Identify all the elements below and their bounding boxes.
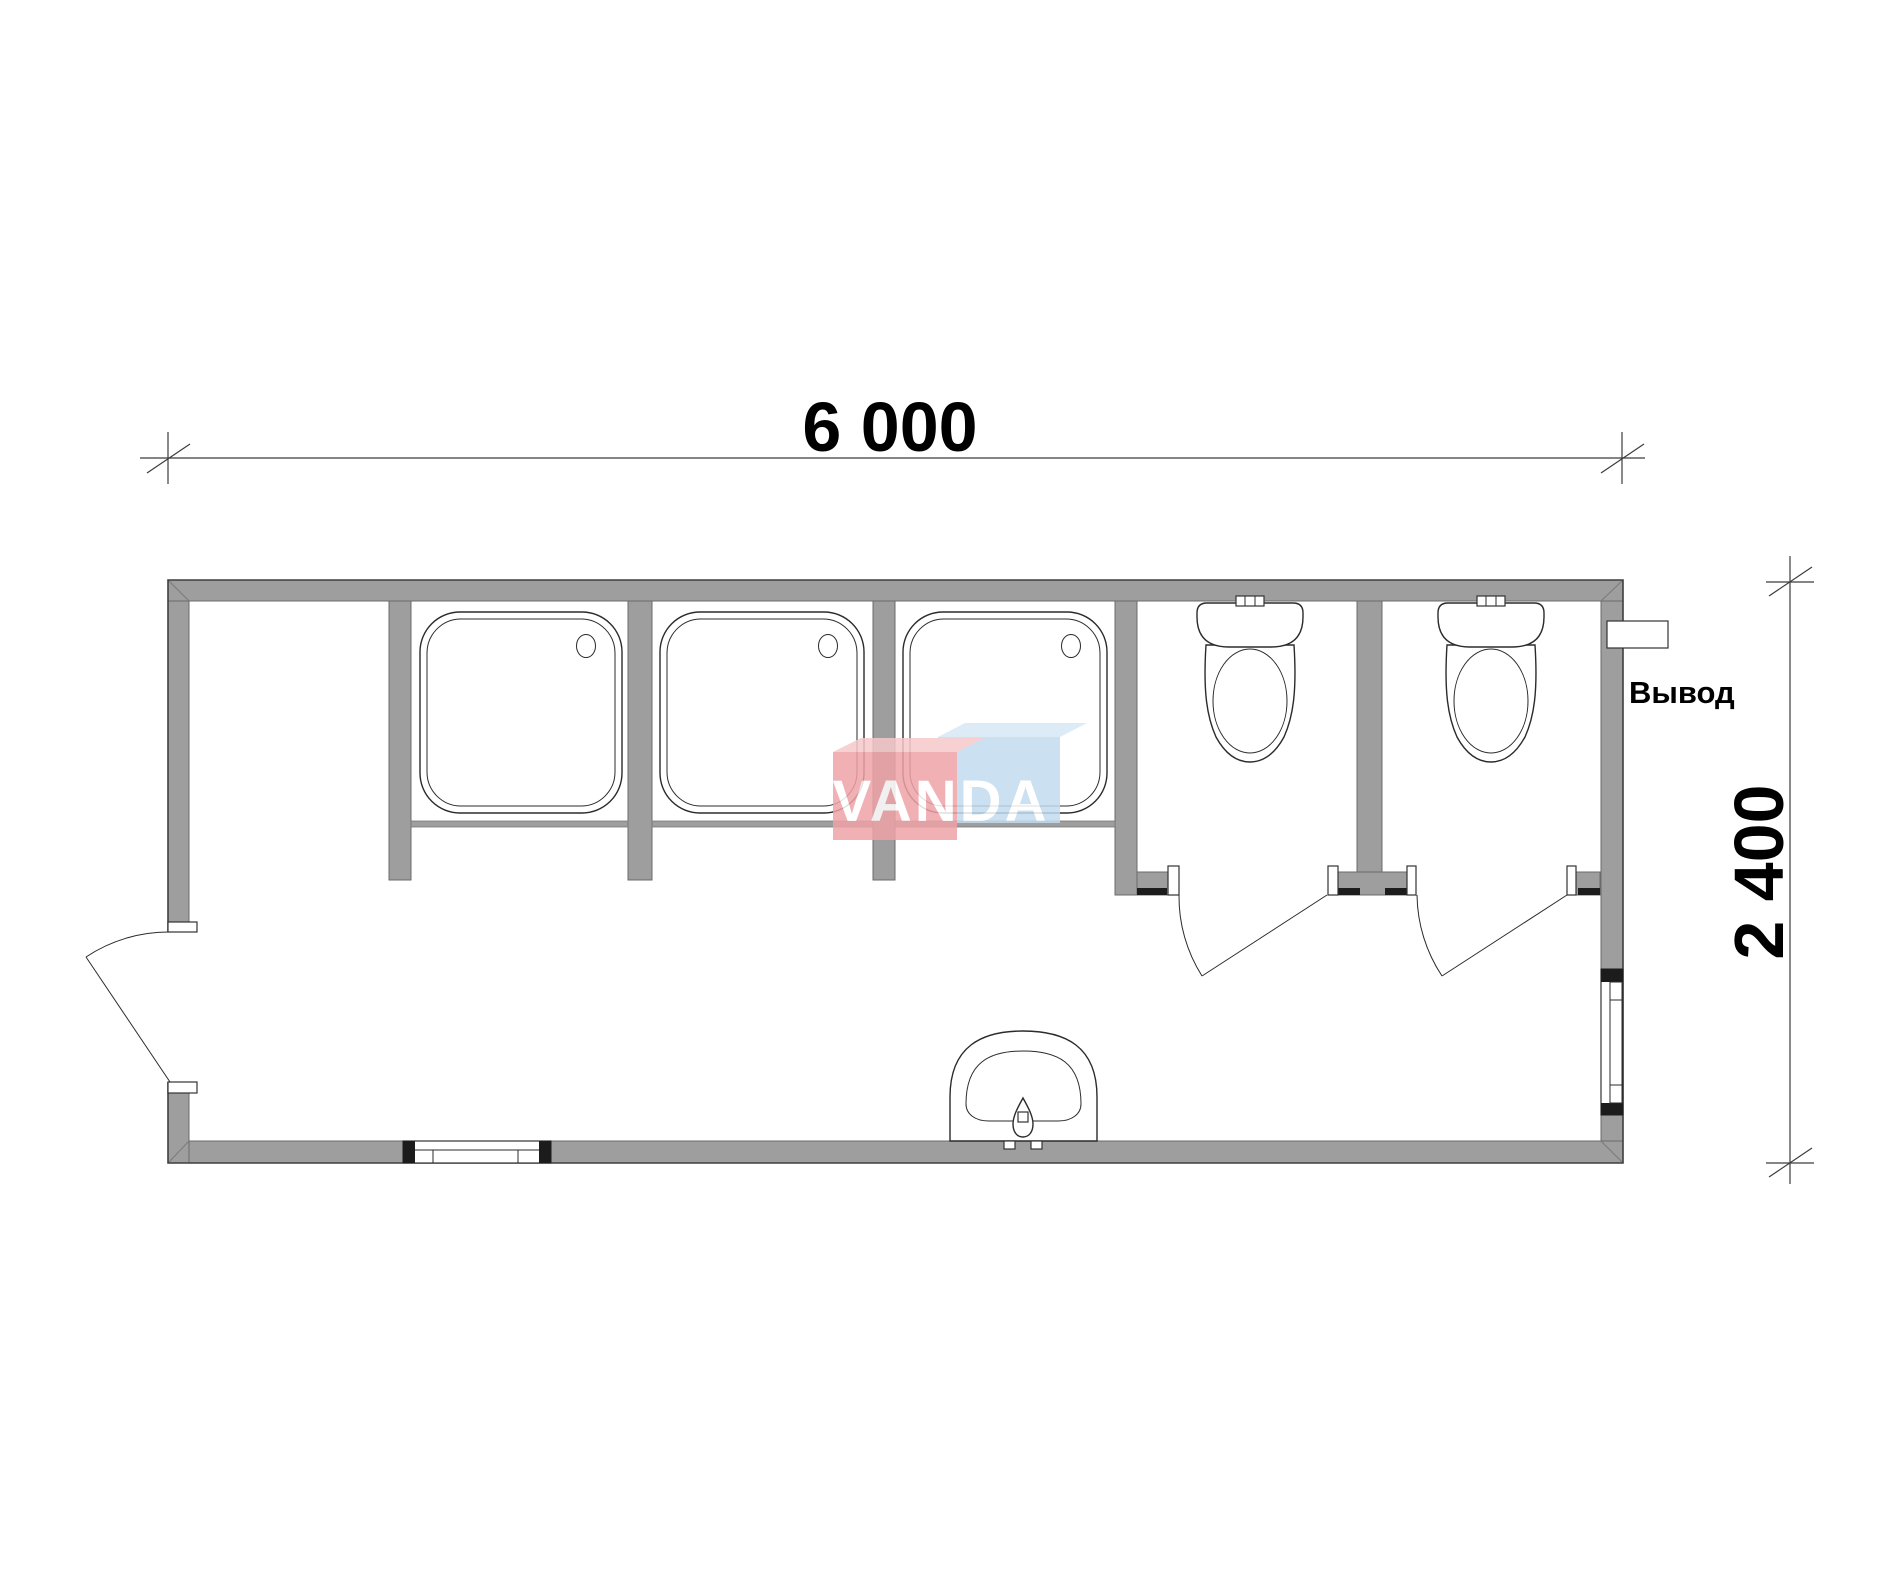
mount-bracket xyxy=(1004,1141,1015,1149)
door-swing-arc xyxy=(1179,895,1202,976)
door-leaf xyxy=(1202,895,1327,976)
dimension-height-label: 2 400 xyxy=(1720,784,1798,959)
window-jamb xyxy=(1601,969,1623,982)
window-jamb xyxy=(539,1141,551,1163)
dimension-height: 2 400 xyxy=(1720,556,1814,1184)
window-opening xyxy=(403,1141,551,1163)
washbasin xyxy=(950,1031,1097,1149)
wall-right-lower xyxy=(1601,1115,1623,1141)
walls xyxy=(168,580,1623,1163)
wall-bottom-right xyxy=(551,1141,1623,1163)
window-jamb xyxy=(403,1141,415,1163)
shower-tray-outer xyxy=(420,612,622,813)
partition-wc-left xyxy=(1115,601,1137,895)
window-jamb xyxy=(1601,1103,1623,1115)
door-jamb xyxy=(1328,866,1338,895)
vanda-watermark: VANDA xyxy=(833,723,1087,840)
toilet-bowl xyxy=(1205,645,1295,762)
partition-shower-2 xyxy=(628,601,652,880)
door-frame-mark xyxy=(1137,888,1167,895)
dimension-width-label: 6 000 xyxy=(802,388,977,466)
door-swing-arc xyxy=(86,932,170,957)
shower-screen xyxy=(411,821,628,827)
wall-top xyxy=(168,580,1623,601)
door-swing-arc xyxy=(1417,895,1442,976)
drawing-sheet: Вывод 6 000 2 400 VANDA xyxy=(0,0,1899,1571)
door-jamb xyxy=(168,1082,197,1093)
toilet-2 xyxy=(1438,596,1544,762)
door-frame-mark xyxy=(1578,888,1600,895)
outlet-box xyxy=(1607,621,1668,648)
shower-tray-1 xyxy=(420,612,622,813)
wall-right-upper xyxy=(1601,601,1623,969)
window-bottom-wall xyxy=(403,1141,551,1163)
door-leaf xyxy=(1442,895,1567,976)
door-leaf xyxy=(86,957,170,1082)
wc-door-2 xyxy=(1407,866,1576,976)
door-jamb xyxy=(1567,866,1576,895)
outlet-label: Вывод xyxy=(1629,675,1735,710)
flush-button xyxy=(1236,596,1264,606)
window-right-wall xyxy=(1601,969,1623,1115)
bathroom-module-floor-plan: Вывод 6 000 2 400 VANDA xyxy=(0,0,1899,1571)
faucet-base xyxy=(1018,1112,1028,1122)
wall-left-upper xyxy=(168,601,189,922)
utility-outlet: Вывод xyxy=(1607,621,1735,710)
wc-door-1 xyxy=(1168,866,1338,976)
door-jamb xyxy=(1407,866,1416,895)
dimension-width: 6 000 xyxy=(140,388,1645,484)
toilet-tank xyxy=(1197,603,1303,647)
logo-text: VANDA xyxy=(833,769,1050,834)
wall-bottom-left xyxy=(189,1141,403,1163)
door-jamb xyxy=(168,922,197,932)
window-opening xyxy=(1601,969,1623,1115)
partition-wc-middle xyxy=(1357,601,1382,872)
door-jamb xyxy=(1168,866,1179,895)
entry-door xyxy=(86,922,197,1093)
mount-bracket xyxy=(1031,1141,1042,1149)
partition-shower-1 xyxy=(389,601,411,880)
toilet-1 xyxy=(1197,596,1303,762)
door-frame-mark xyxy=(1338,888,1360,895)
door-frame-mark xyxy=(1385,888,1407,895)
